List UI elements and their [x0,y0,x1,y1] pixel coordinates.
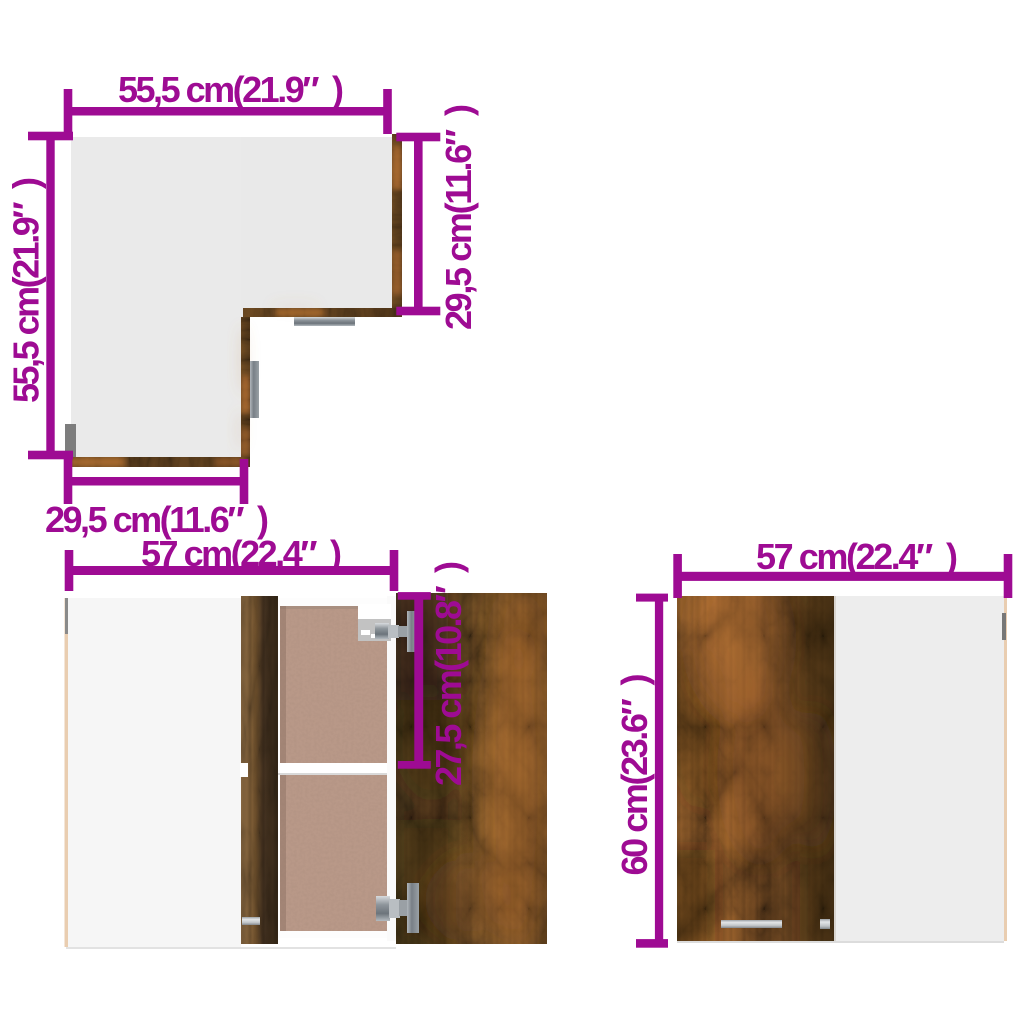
svg-text:57 cm(22.4″ ): 57 cm(22.4″ ) [756,536,958,577]
svg-text:29,5 cm(11.6″ ): 29,5 cm(11.6″ ) [438,104,479,330]
svg-text:27,5 cm(10.8″ ): 27,5 cm(10.8″ ) [428,561,469,786]
svg-text:60 cm(23.6″ ): 60 cm(23.6″ ) [614,674,655,876]
svg-text:57 cm(22.4″ ): 57 cm(22.4″ ) [141,533,342,574]
svg-text:55,5 cm(21.9″ ): 55,5 cm(21.9″ ) [6,177,47,403]
svg-text:55,5 cm(21.9″ ): 55,5 cm(21.9″ ) [118,69,344,110]
